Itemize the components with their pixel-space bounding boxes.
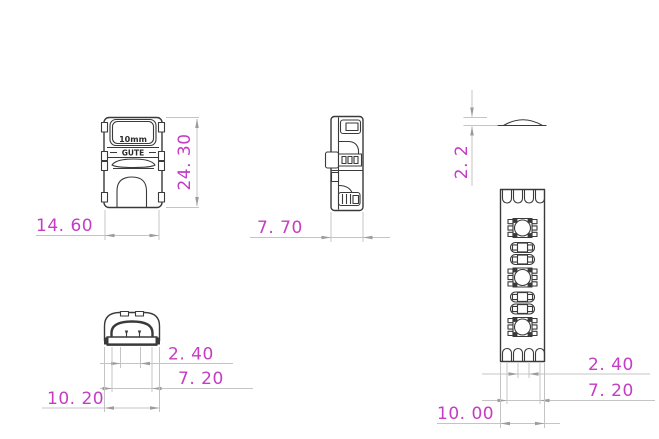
led-strip-view — [501, 190, 545, 362]
dim-bottom-pin-spacing: 2. 40 — [100, 345, 233, 369]
side-notch — [332, 173, 339, 182]
side-top-clip — [341, 120, 361, 134]
front-lens-slot — [112, 159, 155, 168]
dim-strip-width-label: 10. 00 — [437, 404, 494, 424]
dim-front-width: 14. 60 — [36, 210, 159, 240]
dim-front-height: 24. 30 — [166, 118, 199, 208]
dim-bottom-slot-width-label: 7. 20 — [178, 369, 224, 389]
side-latch-block — [326, 152, 362, 168]
strip-component — [511, 255, 535, 265]
bottom-corner-block — [104, 338, 109, 345]
front-marking-size: 10mm — [119, 135, 147, 144]
bottom-corner-block — [156, 338, 161, 345]
led-package — [508, 268, 537, 287]
dim-strip-pad-pitch-label: 2. 40 — [588, 355, 634, 375]
dim-lens-height: 2. 2 — [452, 90, 497, 186]
strip-component — [511, 292, 535, 302]
dim-lens-height-label: 2. 2 — [452, 145, 472, 179]
side-view — [326, 117, 364, 211]
technical-drawing-canvas: 10mm GUTE 24. 30 14. 60 — [0, 0, 659, 439]
led-package — [508, 318, 537, 337]
strip-component — [511, 243, 535, 253]
bottom-top-notch — [121, 312, 129, 317]
dim-front-height-label: 24. 30 — [175, 133, 195, 190]
connector-drawing-svg: 10mm GUTE 24. 30 14. 60 — [0, 0, 659, 439]
bottom-view — [104, 312, 160, 346]
bottom-top-notch — [136, 312, 144, 317]
dim-strip-width: 10. 00 — [437, 363, 560, 428]
dim-bottom-overall-width-label: 10. 20 — [47, 389, 104, 409]
lens-profile-view — [498, 120, 547, 126]
dim-side-depth: 7. 70 — [250, 212, 390, 242]
dim-front-width-label: 14. 60 — [36, 216, 93, 236]
led-package — [508, 219, 537, 238]
dim-bottom-overall-width: 10. 20 — [42, 347, 160, 412]
front-marking-logo: GUTE — [122, 149, 145, 158]
dim-side-depth-label: 7. 70 — [257, 218, 303, 238]
front-view: 10mm GUTE — [102, 118, 165, 208]
side-bottom-clip — [339, 193, 361, 206]
strip-component — [511, 304, 535, 314]
dim-bottom-pin-spacing-label: 2. 40 — [168, 345, 214, 365]
lens-dome — [504, 120, 543, 126]
dim-strip-pad-span-label: 7. 20 — [588, 381, 634, 401]
